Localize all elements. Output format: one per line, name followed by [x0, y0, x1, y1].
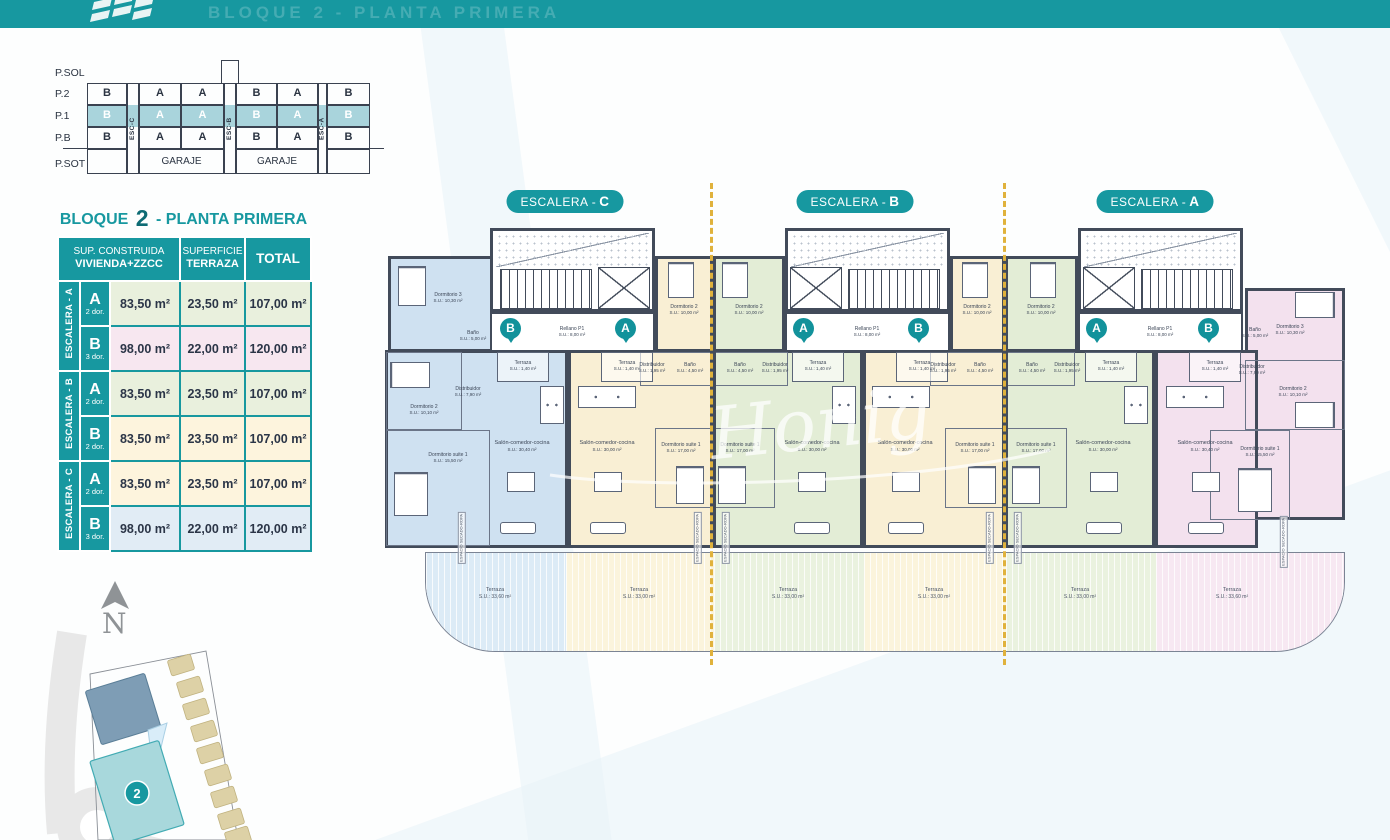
title-prefix: BLOQUE — [60, 211, 128, 228]
room-label: Dormitorio 2S.U.: 10,00 m² — [962, 304, 991, 316]
surface-summary: BLOQUE 2 - PLANTA PRIMERA SUP. CONSTRUID… — [57, 205, 310, 552]
staircase-b — [848, 269, 940, 309]
staircase-c — [500, 269, 592, 309]
group-escalera-a: ESCALERA - A — [58, 281, 80, 371]
room-label: BañoS.U.: 5,00 m² — [460, 330, 487, 342]
room-label: Salón-comedor-cocinaS.U.: 30,40 m² — [494, 440, 549, 453]
room-label: BañoS.U.: 4,50 m² — [677, 362, 704, 374]
room-label: Salón-comedor-cocinaS.U.: 30,00 m² — [579, 440, 634, 453]
section-cell: B — [87, 127, 127, 149]
section-cell: A — [277, 127, 318, 149]
section-cell-highlight: A — [139, 105, 181, 127]
terrace-value: 22,00 m² — [180, 506, 245, 551]
small-terrace-label: TerrazaS.U.: 1,40 m² — [805, 360, 832, 372]
terrace-segment-pink — [1156, 553, 1345, 652]
section-baseline-right — [370, 148, 384, 149]
rellano-label: Rellano P1S.U.: 8,00 m² — [1147, 326, 1174, 338]
section-cell: A — [181, 83, 224, 105]
kitchen-counter — [540, 386, 564, 424]
total-value: 107,00 m² — [245, 461, 311, 506]
section-cell: A — [139, 127, 181, 149]
bed-icon — [668, 262, 694, 298]
escalera-separator-dashed-line — [710, 183, 713, 665]
total-value: 107,00 m² — [245, 281, 311, 326]
stair-landing-b — [791, 233, 944, 267]
secado-ropa-label: ESPACIO SECADO-ROPA — [458, 512, 466, 564]
party-wall — [565, 352, 571, 548]
floor-label-psol: P.SOL — [55, 67, 85, 79]
stair-landing-a — [1084, 233, 1237, 267]
section-cell: B — [327, 127, 370, 149]
surface-table: SUP. CONSTRUIDAVIVIENDA+ZZCC SUPERFICIET… — [57, 236, 312, 552]
north-arrow-icon — [101, 581, 129, 609]
section-cell: B — [236, 83, 277, 105]
small-terrace-label: TerrazaS.U.: 1,40 m² — [1202, 360, 1229, 372]
kitchen-counter — [872, 386, 930, 408]
secado-ropa-label: ESPACIO SECADO-ROPA — [986, 512, 994, 564]
section-cell-highlight: A — [277, 105, 318, 127]
terrace-segment-cream — [864, 553, 1006, 652]
room-label: Dormitorio suite 1S.U.: 15,50 m² — [428, 452, 467, 464]
dining-table-icon — [798, 472, 826, 492]
header-bar: BLOQUE 2 - PLANTA PRIMERA — [0, 0, 1390, 28]
north-label: N — [102, 607, 127, 640]
floorplan-page: { "header": { "ghost_title": "BLOQUE 2 -… — [0, 0, 1390, 840]
unit-cell: B3 dor. — [80, 326, 110, 371]
elevator-c-icon — [598, 267, 650, 309]
unit-pin-a: A — [793, 318, 814, 339]
section-cell: A — [277, 83, 318, 105]
company-logo-icon — [90, 0, 174, 28]
terrace-label: TerrazaS.U.: 33,00 m² — [772, 587, 804, 601]
small-terrace-label: TerrazaS.U.: 1,40 m² — [510, 360, 537, 372]
bed-icon — [1030, 262, 1056, 298]
room-label: Dormitorio 3S.U.: 10,30 m² — [433, 292, 462, 304]
party-wall — [860, 352, 866, 548]
unit-pin-b: B — [500, 318, 521, 339]
room-label: Dormitorio suite 1S.U.: 17,00 m² — [720, 442, 759, 454]
psot-cell-empty — [327, 149, 370, 174]
badge-escalera-b: ESCALERA -B — [797, 190, 914, 213]
floor-label-p1: P.1 — [55, 110, 85, 122]
section-cell: B — [87, 83, 127, 105]
room-label: DistribuidorS.U.: 7,90 m² — [455, 386, 482, 398]
bed-icon — [1295, 292, 1335, 318]
header-ghost-title: BLOQUE 2 - PLANTA PRIMERA — [208, 3, 560, 23]
small-terrace-label: TerrazaS.U.: 1,40 m² — [614, 360, 641, 372]
room-label: BañoS.U.: 4,50 m² — [727, 362, 754, 374]
staircase-a — [1141, 269, 1233, 309]
bed-icon — [718, 466, 746, 504]
bed-icon — [676, 466, 704, 504]
room-label: BañoS.U.: 5,00 m² — [1242, 327, 1269, 339]
terrace-band — [425, 552, 1345, 652]
dining-table-icon — [1192, 472, 1220, 492]
esc-b-strip: ESC-B — [224, 83, 236, 174]
sofa-icon — [1086, 522, 1122, 534]
unit-cell: A2 dor. — [80, 371, 110, 416]
section-cell-highlight: B — [327, 105, 370, 127]
group-escalera-b: ESCALERA - B — [58, 371, 80, 461]
room-label: Dormitorio suite 1S.U.: 17,00 m² — [955, 442, 994, 454]
room-label: DistribuidorS.U.: 1,95 m² — [762, 362, 789, 374]
block-title: BLOQUE 2 - PLANTA PRIMERA — [57, 205, 310, 232]
room-label: DistribuidorS.U.: 1,95 m² — [1054, 362, 1081, 374]
built-value: 83,50 m² — [110, 416, 180, 461]
terrace-value: 23,50 m² — [180, 461, 245, 506]
sofa-icon — [500, 522, 536, 534]
title-block-number: 2 — [136, 205, 149, 231]
dining-table-icon — [892, 472, 920, 492]
floor-label-psot: P.SOT — [55, 158, 85, 170]
unit-pin-b: B — [908, 318, 929, 339]
section-cell: A — [181, 127, 224, 149]
room-label: Dormitorio 2S.U.: 10,10 m² — [409, 404, 438, 416]
secado-ropa-label: ESPACIO SECADO-ROPA — [722, 512, 730, 564]
terrace-label: TerrazaS.U.: 33,60 m² — [1216, 587, 1248, 601]
room-label: Dormitorio 2S.U.: 10,00 m² — [669, 304, 698, 316]
secado-ropa-label: ESPACIO SECADO-ROPA — [694, 512, 702, 564]
bed-icon — [1238, 468, 1272, 512]
header-total: TOTAL — [245, 237, 311, 281]
built-value: 83,50 m² — [110, 461, 180, 506]
rellano-label: Rellano P1S.U.: 8,00 m² — [559, 326, 586, 338]
party-wall — [1152, 352, 1158, 548]
badge-escalera-c: ESCALERA -C — [507, 190, 624, 213]
bed-icon — [722, 262, 748, 298]
block-2-badge-number: 2 — [133, 786, 140, 801]
bed-icon — [398, 266, 426, 306]
kitchen-counter — [1166, 386, 1224, 408]
sofa-icon — [1188, 522, 1224, 534]
built-value: 98,00 m² — [110, 326, 180, 371]
total-value: 120,00 m² — [245, 506, 311, 551]
terrace-segment-blue — [426, 553, 566, 652]
bed-icon — [394, 472, 428, 516]
unit-pin-b: B — [1198, 318, 1219, 339]
terrace-label: TerrazaS.U.: 33,00 m² — [1064, 587, 1096, 601]
unit-pin-a: A — [1086, 318, 1107, 339]
psot-cell-empty — [87, 149, 127, 174]
terrace-label: TerrazaS.U.: 33,00 m² — [623, 587, 655, 601]
small-terrace-label: TerrazaS.U.: 1,40 m² — [1098, 360, 1125, 372]
unit-cell: A2 dor. — [80, 461, 110, 506]
floor-label-pb: P.B — [55, 132, 85, 144]
room-label: DistribuidorS.U.: 7,90 m² — [1239, 364, 1266, 376]
section-cell-highlight: B — [87, 105, 127, 127]
room-label: Dormitorio suite 1S.U.: 17,00 m² — [661, 442, 700, 454]
total-value: 107,00 m² — [245, 371, 311, 416]
stair-landing-c — [496, 233, 649, 267]
room-label: BañoS.U.: 4,50 m² — [1019, 362, 1046, 374]
terrace-value: 23,50 m² — [180, 281, 245, 326]
badge-escalera-a: ESCALERA -A — [1097, 190, 1214, 213]
bed-icon — [968, 466, 996, 504]
section-cell-highlight: B — [236, 105, 277, 127]
built-value: 83,50 m² — [110, 281, 180, 326]
header-built-surface: SUP. CONSTRUIDAVIVIENDA+ZZCC — [58, 237, 180, 281]
site-plan: 2 N — [40, 575, 320, 840]
room-label: Salón-comedor-cocinaS.U.: 30,00 m² — [1075, 440, 1130, 453]
unit-pin-a: A — [615, 318, 636, 339]
unit-cell: B2 dor. — [80, 416, 110, 461]
dining-table-icon — [1090, 472, 1118, 492]
group-escalera-c: ESCALERA - C — [58, 461, 80, 551]
dining-table-icon — [594, 472, 622, 492]
elevator-a-icon — [1083, 267, 1135, 309]
room-label: Dormitorio suite 1S.U.: 15,50 m² — [1240, 446, 1279, 458]
bed-icon — [962, 262, 988, 298]
garage-left-cell: GARAJE — [139, 149, 224, 174]
escalera-separator-dashed-line — [1003, 183, 1006, 665]
terrace-segment-green — [714, 553, 864, 652]
bed-icon — [390, 362, 430, 388]
room-label: Dormitorio 2S.U.: 10,00 m² — [1026, 304, 1055, 316]
room-label: Dormitorio 2S.U.: 10,00 m² — [734, 304, 763, 316]
esc-b-tower — [221, 60, 239, 84]
elevator-b-icon — [790, 267, 842, 309]
esc-a-strip: ESC-A — [318, 83, 327, 174]
section-cell: B — [236, 127, 277, 149]
kitchen-counter — [578, 386, 636, 408]
dining-table-icon — [507, 472, 535, 492]
bed-icon — [1295, 402, 1335, 428]
garage-right-cell: GARAJE — [236, 149, 318, 174]
floor-label-p2: P.2 — [55, 88, 85, 100]
kitchen-counter — [832, 386, 856, 424]
unit-cell: B3 dor. — [80, 506, 110, 551]
section-cell: B — [327, 83, 370, 105]
room-label: BañoS.U.: 4,50 m² — [967, 362, 994, 374]
rellano-label: Rellano P1S.U.: 8,00 m² — [854, 326, 881, 338]
section-cell: A — [139, 83, 181, 105]
sofa-icon — [590, 522, 626, 534]
unit-cell: A2 dor. — [80, 281, 110, 326]
bed-icon — [1012, 466, 1040, 504]
room-label: Salón-comedor-cocinaS.U.: 30,00 m² — [877, 440, 932, 453]
terrace-segment-cream — [566, 553, 714, 652]
room-label: Salón-comedor-cocinaS.U.: 30,00 m² — [784, 440, 839, 453]
terrace-label: TerrazaS.U.: 33,60 m² — [479, 587, 511, 601]
building-section-diagram: P.SOL P.2 P.1 P.B P.SOT B A A B A B B A … — [55, 55, 390, 185]
kitchen-counter — [1124, 386, 1148, 424]
room-label: Dormitorio suite 1S.U.: 17,00 m² — [1016, 442, 1055, 454]
built-value: 83,50 m² — [110, 371, 180, 416]
total-value: 107,00 m² — [245, 416, 311, 461]
title-suffix: - PLANTA PRIMERA — [156, 211, 307, 228]
room-label: DistribuidorS.U.: 1,95 m² — [930, 362, 957, 374]
room-label: Salón-comedor-cocinaS.U.: 30,40 m² — [1177, 440, 1232, 453]
room-label: DistribuidorS.U.: 1,95 m² — [639, 362, 666, 374]
terrace-label: TerrazaS.U.: 33,00 m² — [918, 587, 950, 601]
terrace-segment-green — [1006, 553, 1156, 652]
sofa-icon — [888, 522, 924, 534]
room-label: Dormitorio 2S.U.: 10,10 m² — [1278, 386, 1307, 398]
section-cell-highlight: A — [181, 105, 224, 127]
esc-c-strip: ESC-C — [127, 83, 139, 174]
section-baseline-left — [63, 148, 87, 149]
secado-ropa-label: ESPACIO SECADO-ROPA — [1280, 516, 1288, 568]
terrace-value: 23,50 m² — [180, 416, 245, 461]
secado-ropa-label: ESPACIO SECADO-ROPA — [1014, 512, 1022, 564]
built-value: 98,00 m² — [110, 506, 180, 551]
header-terrace-surface: SUPERFICIETERRAZA — [180, 237, 245, 281]
sofa-icon — [794, 522, 830, 534]
total-value: 120,00 m² — [245, 326, 311, 371]
terrace-value: 23,50 m² — [180, 371, 245, 416]
terrace-value: 22,00 m² — [180, 326, 245, 371]
room-label: Dormitorio 3S.U.: 10,30 m² — [1275, 324, 1304, 336]
